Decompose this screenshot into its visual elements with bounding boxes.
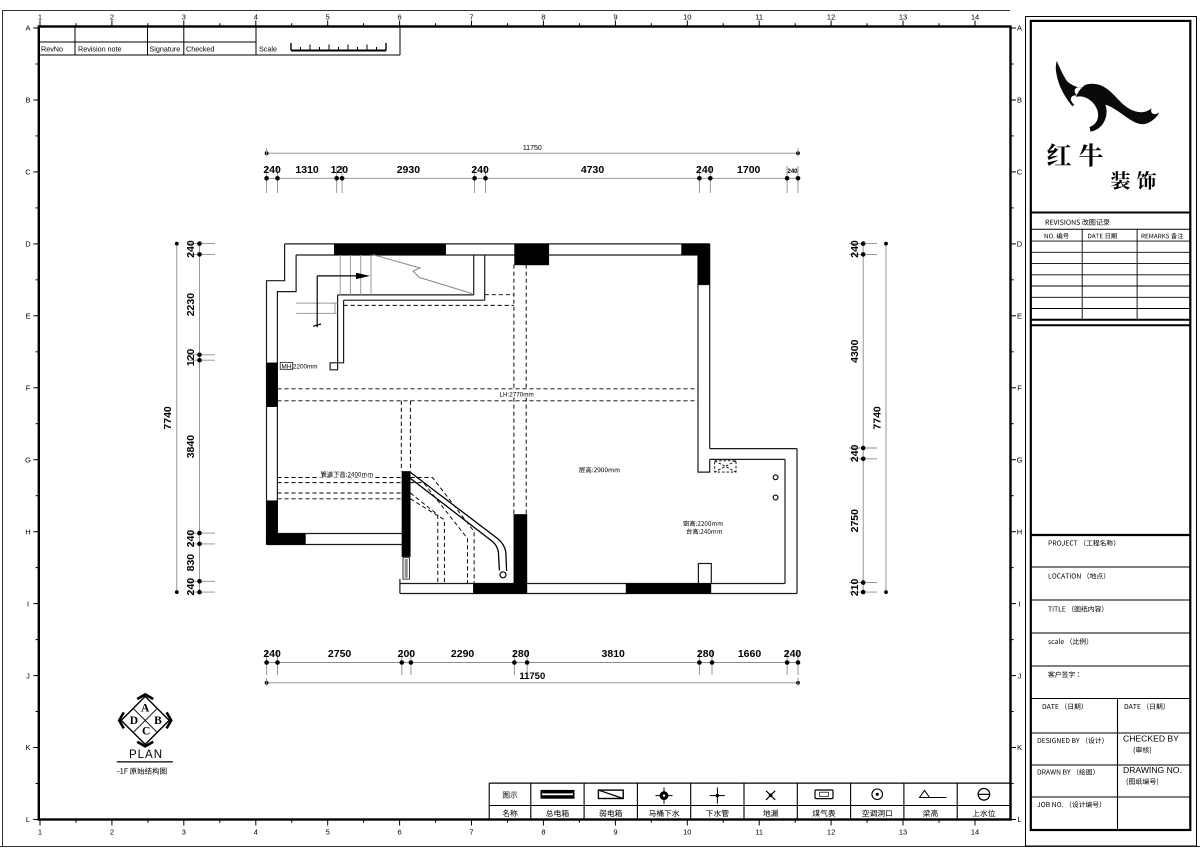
svg-text:240: 240: [185, 530, 197, 548]
svg-text:11: 11: [755, 13, 763, 22]
svg-text:7740: 7740: [871, 406, 883, 430]
svg-text:4: 4: [254, 13, 258, 22]
svg-text:LH:2770mm: LH:2770mm: [500, 392, 534, 399]
svg-text:K: K: [25, 743, 30, 752]
svg-text:240: 240: [263, 648, 281, 660]
svg-text:2750: 2750: [849, 509, 861, 533]
svg-text:2750: 2750: [328, 648, 352, 660]
svg-text:3840: 3840: [185, 435, 197, 459]
svg-text:12: 12: [827, 828, 835, 837]
svg-text:11750: 11750: [519, 671, 545, 682]
svg-text:K: K: [1017, 743, 1022, 752]
svg-text:13: 13: [899, 828, 907, 837]
svg-text:10: 10: [683, 13, 691, 22]
svg-text:D: D: [25, 240, 31, 249]
svg-text:280: 280: [697, 648, 715, 660]
svg-text:12: 12: [827, 13, 835, 22]
svg-text:240: 240: [849, 240, 861, 258]
svg-text:B: B: [154, 715, 162, 727]
svg-text:Scale: Scale: [259, 45, 277, 54]
svg-text:F: F: [26, 383, 31, 392]
svg-text:7: 7: [469, 828, 473, 837]
svg-text:4: 4: [254, 828, 258, 837]
svg-text:6: 6: [398, 13, 402, 22]
svg-text:E: E: [1017, 312, 1022, 321]
svg-text:MH:2200mm: MH:2200mm: [282, 363, 318, 370]
svg-text:Revision note: Revision note: [78, 45, 122, 54]
svg-text:DRAWING NO.: DRAWING NO.: [1123, 765, 1182, 775]
svg-text:C: C: [1017, 168, 1023, 177]
svg-text:1660: 1660: [738, 648, 762, 660]
svg-text:A: A: [1017, 24, 1022, 33]
svg-text:13: 13: [899, 13, 907, 22]
svg-text:2: 2: [110, 828, 114, 837]
svg-text:C: C: [25, 168, 31, 177]
svg-text:240: 240: [185, 578, 197, 596]
svg-text:J: J: [1018, 671, 1022, 680]
svg-text:240: 240: [787, 169, 798, 175]
svg-text:2290: 2290: [451, 648, 475, 660]
svg-text:120: 120: [185, 349, 197, 367]
svg-text:8: 8: [541, 13, 545, 22]
svg-text:A: A: [141, 703, 150, 715]
svg-text:2930: 2930: [397, 164, 421, 176]
svg-text:11: 11: [755, 828, 763, 837]
svg-text:200: 200: [398, 648, 416, 660]
svg-text:H: H: [25, 527, 30, 536]
svg-text:Checked: Checked: [186, 45, 214, 54]
svg-text:1: 1: [38, 828, 42, 837]
svg-text:D: D: [1017, 240, 1023, 249]
svg-text:14: 14: [971, 828, 979, 837]
svg-text:240: 240: [471, 164, 489, 176]
svg-text:L: L: [26, 815, 30, 824]
svg-text:3: 3: [182, 828, 186, 837]
svg-text:D: D: [130, 715, 138, 727]
svg-text:240: 240: [784, 648, 802, 660]
svg-text:G: G: [25, 455, 31, 464]
svg-text:9: 9: [613, 828, 617, 837]
svg-text:E: E: [25, 312, 30, 321]
svg-text:H: H: [1017, 527, 1022, 536]
svg-text:2: 2: [110, 13, 114, 22]
svg-text:L: L: [1017, 815, 1021, 824]
svg-text:4730: 4730: [581, 164, 605, 176]
svg-text:240: 240: [849, 444, 861, 462]
svg-text:5: 5: [326, 828, 330, 837]
svg-text:CHECKED BY: CHECKED BY: [1123, 734, 1179, 744]
svg-text:240: 240: [185, 240, 197, 258]
svg-text:240: 240: [263, 164, 281, 176]
svg-text:1310: 1310: [295, 164, 319, 176]
svg-text:F: F: [1017, 383, 1022, 392]
svg-text:3: 3: [182, 13, 186, 22]
svg-text:B: B: [25, 96, 30, 105]
svg-text:A: A: [25, 24, 30, 33]
svg-text:8: 8: [541, 828, 545, 837]
svg-text:1700: 1700: [737, 164, 761, 176]
svg-text:1: 1: [38, 13, 42, 22]
svg-text:J: J: [26, 671, 30, 680]
svg-text:7: 7: [469, 13, 473, 22]
svg-text:10: 10: [683, 828, 691, 837]
svg-text:210: 210: [849, 578, 861, 596]
svg-text:Signature: Signature: [150, 45, 181, 54]
svg-text:G: G: [1017, 455, 1023, 464]
svg-text:120: 120: [331, 164, 349, 176]
svg-text:9: 9: [613, 13, 617, 22]
svg-text:830: 830: [185, 554, 197, 572]
svg-text:2230: 2230: [185, 293, 197, 317]
svg-text:4300: 4300: [849, 339, 861, 363]
svg-text:11750: 11750: [523, 145, 542, 152]
svg-text:6: 6: [398, 828, 402, 837]
svg-text:C: C: [142, 726, 150, 738]
svg-text:280: 280: [512, 648, 530, 660]
svg-text:RevNo: RevNo: [41, 45, 63, 54]
svg-text:PLAN: PLAN: [129, 749, 163, 761]
svg-text:14: 14: [971, 13, 979, 22]
svg-text:B: B: [1017, 96, 1022, 105]
svg-text:I: I: [1018, 599, 1020, 608]
svg-text:I: I: [27, 599, 29, 608]
svg-text:5: 5: [326, 13, 330, 22]
svg-text:7740: 7740: [162, 406, 174, 430]
svg-text:240: 240: [696, 164, 714, 176]
svg-text:3810: 3810: [602, 648, 626, 660]
